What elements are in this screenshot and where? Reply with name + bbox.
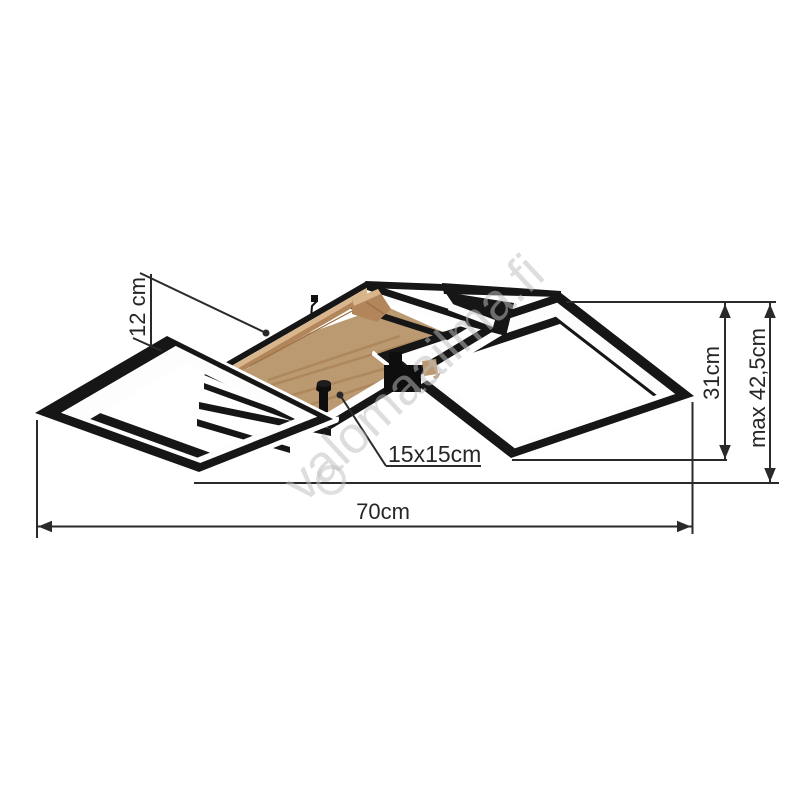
svg-text:12 cm: 12 cm bbox=[125, 277, 150, 337]
svg-text:max 42,5cm: max 42,5cm bbox=[745, 328, 770, 448]
svg-text:31cm: 31cm bbox=[699, 346, 724, 400]
svg-text:70cm: 70cm bbox=[356, 499, 410, 524]
svg-text:15x15cm: 15x15cm bbox=[388, 441, 481, 467]
